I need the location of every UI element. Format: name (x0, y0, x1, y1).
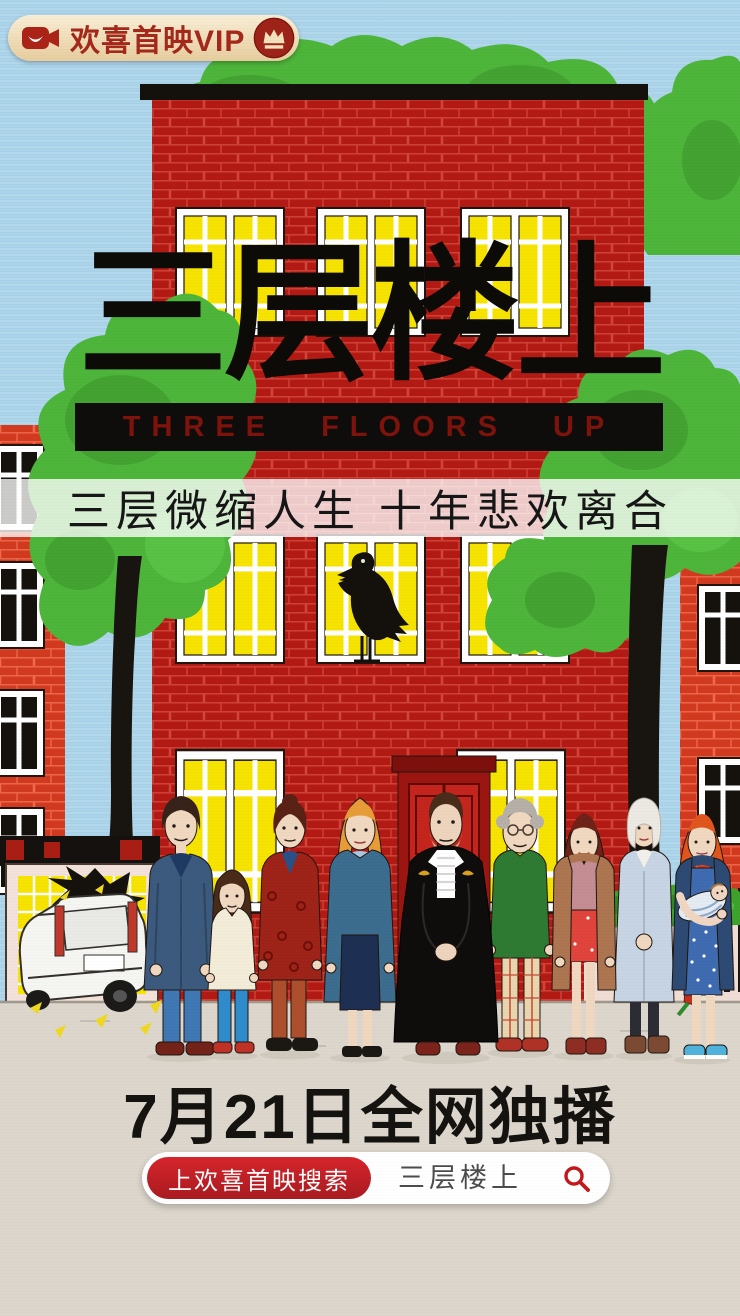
tagline-text: 三层微缩人生 十年悲欢离合 (67, 477, 673, 539)
search-bar[interactable]: 上欢喜首映搜索 三层楼上 (142, 1152, 610, 1204)
search-query-text: 三层楼上 (382, 1152, 538, 1204)
crown-icon (253, 17, 295, 59)
magnifier-icon[interactable] (563, 1165, 590, 1192)
app-vip-badge[interactable]: 欢喜首映VIP (8, 15, 299, 61)
badge-label: 欢喜首映VIP (70, 16, 245, 60)
tagline-banner: 三层微缩人生 十年悲欢离合 (0, 479, 740, 537)
search-prompt-button[interactable]: 上欢喜首映搜索 (147, 1157, 371, 1199)
rooftop (140, 84, 648, 100)
movie-title-en: THREE FLOORS UP (123, 411, 616, 444)
video-camera-icon (22, 25, 60, 51)
movie-poster: 欢喜首映VIP 三层楼上 THREE FLOORS UP 三层微缩人生 十年悲欢… (0, 0, 740, 1316)
release-date-text: 7月21日全网独播 (0, 1066, 740, 1156)
movie-title: 三层楼上 (0, 232, 740, 402)
movie-title-en-bar: THREE FLOORS UP (75, 403, 663, 451)
mid-right-canopy (485, 531, 646, 657)
